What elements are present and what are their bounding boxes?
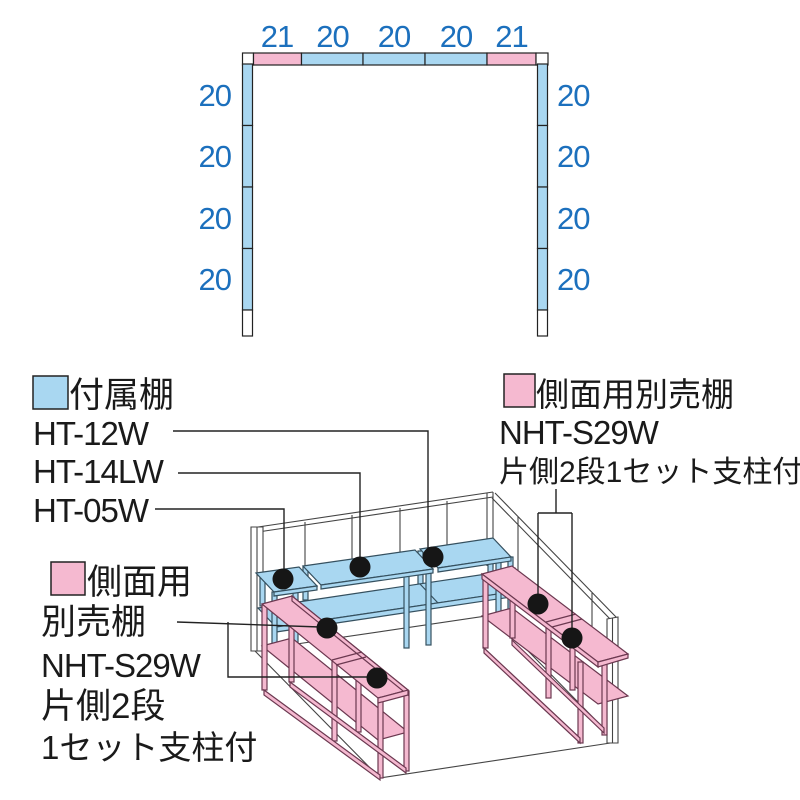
side-shelf-left-model: NHT-S29W (41, 647, 202, 684)
plan-right-end (538, 310, 548, 336)
plan-left-segment-2 (243, 126, 253, 188)
plan-right-segment-4 (538, 249, 548, 311)
dim-left-1: 20 (199, 78, 232, 113)
side-shelf-left-line5: 1セット支柱付 (41, 729, 257, 766)
dim-top-2: 20 (316, 19, 349, 54)
marker-dot-right-top (528, 594, 549, 615)
dim-left-2: 20 (199, 139, 232, 174)
dim-right-2: 20 (557, 139, 590, 174)
attached-shelf-swatch-icon (33, 376, 68, 409)
plan-top-segment-blue-3 (425, 53, 487, 65)
marker-dot-left-lower (367, 668, 388, 689)
back-wall-top-edge (258, 492, 493, 532)
plan-left-segment-1 (243, 64, 253, 126)
legend-attached-shelf: 付属棚 HT-12W HT-14LW HT-05W (33, 376, 174, 529)
plan-top-segment-blue-2 (363, 53, 425, 65)
side-shelf-right-note: 片側2段1セット支柱付 (499, 456, 800, 489)
attached-shelf-title: 付属棚 (69, 376, 174, 415)
plan-top-segment-blue-1 (302, 53, 364, 65)
marker-dot-ht14lw (350, 557, 371, 578)
dim-top-4: 20 (440, 19, 473, 54)
callout-line-ht05w (155, 509, 284, 571)
side-shelf-right-title: 側面用別売棚 (536, 376, 734, 413)
dim-right-1: 20 (557, 78, 590, 113)
plan-left-segment-3 (243, 187, 253, 249)
plan-right-segment-2 (538, 126, 548, 188)
shed-shelf-layout-diagram: 21 20 20 20 21 20 20 20 20 20 20 20 20 付… (0, 0, 800, 800)
plan-top-segment-pink-right (487, 53, 536, 65)
attached-shelf-model-2: HT-14LW (33, 453, 165, 490)
blue-leg (404, 572, 409, 648)
pink-leg (378, 699, 383, 778)
pink-leg (404, 691, 409, 771)
side-shelf-swatch-icon (504, 374, 535, 407)
side-shelf-left-line2: 別売棚 (41, 603, 146, 642)
marker-dot-ht05w (273, 569, 294, 590)
side-shelf-left-line4: 片側2段 (41, 687, 165, 726)
plan-left-end (243, 310, 253, 336)
plan-right-segment-1 (538, 64, 548, 126)
plan-right-segment-3 (538, 187, 548, 249)
dim-right-3: 20 (557, 201, 590, 236)
plan-corner-right (536, 53, 548, 65)
dim-left-4: 20 (199, 262, 232, 297)
dim-left-3: 20 (199, 201, 232, 236)
dim-top-3: 20 (378, 19, 411, 54)
blue-leg (426, 569, 431, 645)
marker-dot-left-top (317, 618, 338, 639)
legend-side-shelf-right: 側面用別売棚 NHT-S29W 片側2段1セット支柱付 (499, 374, 800, 489)
legend-side-shelf-left: 側面用 別売棚 NHT-S29W 片側2段 1セット支柱付 (41, 562, 257, 766)
marker-dot-right-lower (562, 628, 583, 649)
pink-leg (332, 661, 337, 741)
pink-leg (546, 624, 551, 698)
callout-line-ht12w (173, 431, 428, 549)
attached-shelf-model-3: HT-05W (33, 492, 150, 529)
plan-corner-left (243, 53, 254, 65)
marker-dot-ht12w (423, 547, 444, 568)
pink-leg (578, 662, 583, 743)
plan-left-segment-4 (243, 249, 253, 311)
attached-shelf-model-1: HT-12W (33, 415, 150, 452)
side-shelf-left-line1: 側面用 (87, 563, 192, 602)
side-shelf-swatch-icon-2 (51, 562, 85, 595)
dim-top-5: 21 (495, 19, 527, 54)
diagram-canvas: 21 20 20 20 21 20 20 20 20 20 20 20 20 付… (0, 0, 800, 800)
plan-view: 21 20 20 20 21 20 20 20 20 20 20 20 20 (199, 19, 591, 336)
dim-top-1: 21 (261, 19, 293, 54)
pink-leg (483, 576, 488, 648)
dim-right-4: 20 (557, 262, 590, 297)
side-shelf-right-model: NHT-S29W (499, 414, 660, 451)
plan-top-segment-pink-left (254, 53, 302, 65)
side-shelf-unit-right (482, 566, 628, 743)
